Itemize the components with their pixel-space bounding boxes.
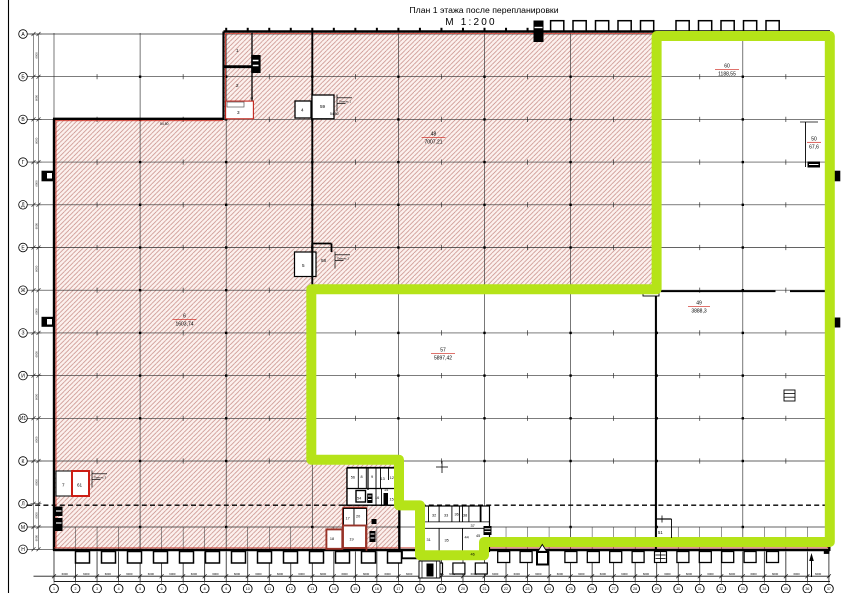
svg-text:План 1 этажа после перепланиро: План 1 этажа после перепланировки [409, 5, 558, 15]
svg-text:36: 36 [805, 587, 809, 591]
svg-text:Г: Г [22, 160, 25, 166]
svg-text:6000: 6000 [707, 572, 714, 576]
svg-text:6000: 6000 [35, 223, 39, 230]
svg-text:45: 45 [476, 534, 480, 538]
svg-text:14: 14 [332, 587, 336, 591]
svg-text:1: 1 [236, 48, 239, 53]
svg-text:10: 10 [246, 587, 250, 591]
svg-text:6000: 6000 [815, 572, 822, 576]
svg-text:Панель 2: Панель 2 [337, 256, 349, 260]
svg-text:6000: 6000 [385, 572, 392, 576]
svg-text:6000: 6000 [83, 572, 90, 576]
svg-text:67,6: 67,6 [809, 145, 819, 151]
svg-text:6000: 6000 [35, 393, 39, 400]
svg-text:33: 33 [444, 514, 448, 518]
svg-text:6000: 6000 [105, 572, 112, 576]
svg-text:6: 6 [183, 314, 186, 320]
svg-text:15: 15 [353, 587, 357, 591]
svg-text:16: 16 [375, 496, 379, 500]
svg-text:6000: 6000 [578, 572, 585, 576]
svg-text:18: 18 [330, 537, 334, 541]
svg-text:31: 31 [698, 587, 702, 591]
svg-text:27: 27 [612, 587, 616, 591]
svg-text:60: 60 [724, 64, 730, 70]
svg-text:7: 7 [182, 587, 184, 591]
svg-text:8: 8 [204, 587, 206, 591]
svg-text:6000: 6000 [621, 572, 628, 576]
svg-text:29: 29 [655, 587, 659, 591]
svg-text:56: 56 [351, 476, 355, 480]
svg-text:7007,21: 7007,21 [424, 140, 442, 146]
svg-text:34: 34 [762, 587, 766, 591]
svg-text:13: 13 [310, 587, 314, 591]
svg-text:Н: Н [21, 547, 25, 553]
svg-text:7: 7 [62, 483, 65, 488]
svg-text:26: 26 [590, 587, 594, 591]
svg-text:58: 58 [321, 258, 327, 263]
svg-text:35: 35 [784, 587, 788, 591]
svg-text:Панель 1: Панель 1 [339, 99, 351, 103]
svg-text:6000: 6000 [772, 572, 779, 576]
svg-text:3: 3 [96, 587, 98, 591]
svg-text:Панель 3: Панель 3 [94, 475, 106, 479]
svg-text:6000: 6000 [35, 479, 39, 486]
svg-text:4: 4 [301, 108, 304, 113]
svg-text:6000: 6000 [35, 180, 39, 187]
svg-text:3888,3: 3888,3 [691, 309, 707, 315]
svg-text:13: 13 [381, 477, 385, 481]
svg-text:6000: 6000 [62, 572, 69, 576]
svg-text:6000: 6000 [729, 572, 736, 576]
svg-text:6000: 6000 [535, 572, 542, 576]
svg-text:4: 4 [118, 587, 120, 591]
svg-text:6000: 6000 [514, 572, 521, 576]
svg-text:31: 31 [427, 538, 431, 542]
svg-text:14: 14 [384, 488, 388, 492]
svg-text:6000: 6000 [406, 572, 413, 576]
svg-text:16: 16 [375, 587, 379, 591]
svg-text:6: 6 [161, 587, 163, 591]
svg-text:61: 61 [77, 483, 83, 488]
svg-text:30: 30 [676, 587, 680, 591]
svg-text:5: 5 [302, 263, 305, 268]
svg-text:И1: И1 [20, 416, 27, 422]
svg-text:6000: 6000 [341, 572, 348, 576]
svg-text:46: 46 [471, 553, 475, 557]
svg-text:32: 32 [432, 514, 436, 518]
svg-text:2: 2 [236, 83, 239, 88]
svg-text:6000: 6000 [363, 572, 370, 576]
svg-text:24: 24 [547, 587, 551, 591]
svg-text:6000: 6000 [643, 572, 650, 576]
svg-text:23: 23 [526, 587, 530, 591]
svg-text:К: К [22, 459, 25, 465]
svg-text:48: 48 [431, 132, 437, 138]
svg-text:5897,42: 5897,42 [434, 356, 452, 362]
svg-text:8: 8 [250, 97, 254, 99]
svg-text:6000: 6000 [212, 572, 219, 576]
svg-text:8: 8 [361, 475, 363, 479]
svg-text:6000: 6000 [686, 572, 693, 576]
svg-text:1188,55: 1188,55 [718, 72, 736, 78]
svg-text:6000: 6000 [557, 572, 564, 576]
svg-text:Ж: Ж [21, 288, 26, 294]
svg-text:З: З [21, 331, 24, 337]
svg-text:6000: 6000 [35, 52, 39, 59]
svg-text:37: 37 [827, 587, 831, 591]
svg-text:6000: 6000 [793, 572, 800, 576]
svg-text:6000: 6000 [148, 572, 155, 576]
svg-text:54: 54 [357, 497, 361, 501]
svg-text:25: 25 [569, 587, 573, 591]
svg-text:20: 20 [461, 587, 465, 591]
svg-text:33: 33 [741, 587, 745, 591]
svg-text:12: 12 [289, 587, 293, 591]
svg-text:11: 11 [267, 587, 271, 591]
svg-text:19: 19 [349, 538, 353, 542]
svg-text:49: 49 [696, 301, 702, 307]
svg-text:51: 51 [658, 530, 663, 535]
svg-text:6000: 6000 [35, 512, 39, 519]
svg-text:12: 12 [390, 476, 394, 480]
svg-text:И: И [21, 373, 25, 379]
svg-text:6000: 6000 [320, 572, 327, 576]
svg-text:М: М [21, 525, 25, 531]
svg-text:6000: 6000 [35, 535, 39, 542]
svg-text:57: 57 [440, 348, 446, 354]
svg-text:6000: 6000 [492, 572, 499, 576]
svg-text:38: 38 [463, 514, 467, 518]
svg-text:54.80: 54.80 [160, 122, 169, 126]
svg-text:35: 35 [445, 539, 449, 543]
svg-text:20: 20 [356, 515, 360, 519]
svg-text:6000: 6000 [35, 351, 39, 358]
svg-text:1: 1 [53, 587, 55, 591]
svg-text:36: 36 [455, 513, 459, 517]
svg-text:15: 15 [390, 498, 394, 502]
svg-text:17: 17 [346, 517, 350, 521]
svg-text:9: 9 [371, 475, 373, 479]
svg-text:32: 32 [719, 587, 723, 591]
svg-text:17: 17 [396, 587, 400, 591]
svg-text:6000: 6000 [191, 572, 198, 576]
svg-text:6000: 6000 [169, 572, 176, 576]
svg-text:22: 22 [504, 587, 508, 591]
svg-text:Л: Л [21, 502, 24, 508]
svg-text:9: 9 [225, 587, 227, 591]
svg-text:6000: 6000 [35, 436, 39, 443]
svg-text:3: 3 [237, 110, 240, 115]
svg-text:6000: 6000 [35, 137, 39, 144]
svg-text:2: 2 [75, 587, 77, 591]
svg-text:6000: 6000 [277, 572, 284, 576]
svg-text:6000: 6000 [600, 572, 607, 576]
svg-text:5: 5 [139, 587, 141, 591]
svg-text:6000: 6000 [35, 308, 39, 315]
svg-text:44: 44 [465, 536, 469, 540]
svg-text:6000: 6000 [126, 572, 133, 576]
svg-text:59: 59 [320, 104, 326, 109]
svg-text:М 1:200: М 1:200 [445, 17, 497, 28]
svg-text:6000: 6000 [35, 95, 39, 102]
svg-text:19: 19 [439, 587, 443, 591]
svg-text:6000: 6000 [255, 572, 262, 576]
svg-text:18: 18 [418, 587, 422, 591]
svg-text:6000: 6000 [234, 572, 241, 576]
svg-text:50: 50 [811, 137, 817, 143]
svg-text:6000: 6000 [664, 572, 671, 576]
svg-text:1603,74: 1603,74 [175, 322, 193, 328]
svg-text:6000: 6000 [750, 572, 757, 576]
svg-text:21: 21 [483, 587, 487, 591]
svg-text:6000: 6000 [298, 572, 305, 576]
svg-text:37: 37 [471, 524, 475, 528]
svg-text:54.80: 54.80 [330, 112, 339, 116]
svg-text:28: 28 [633, 587, 637, 591]
svg-text:6000: 6000 [35, 265, 39, 272]
